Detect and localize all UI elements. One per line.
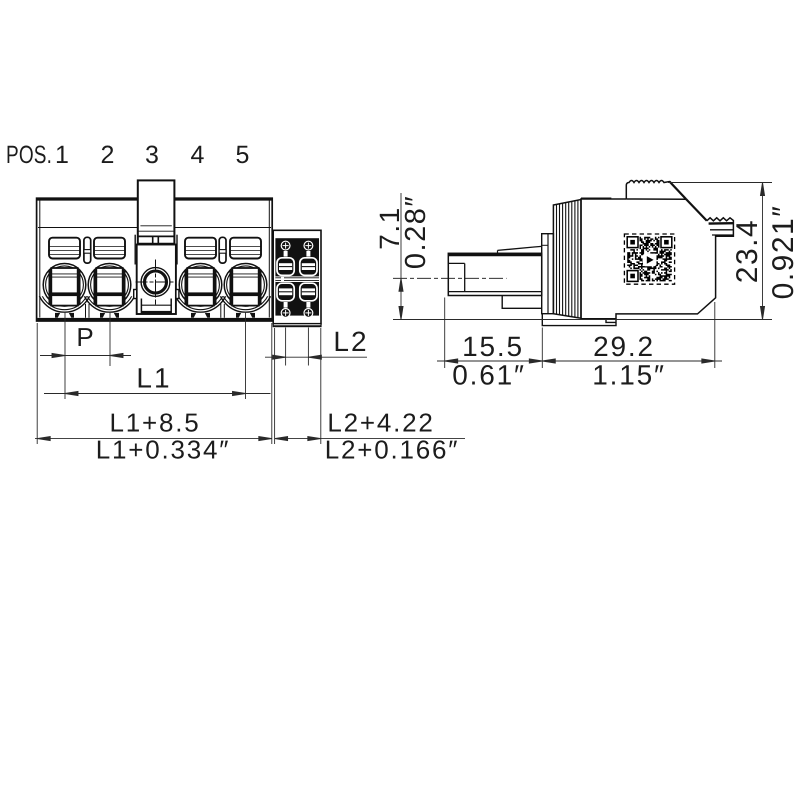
svg-text:0.921″: 0.921″ — [767, 205, 800, 300]
svg-text:1.15″: 1.15″ — [592, 360, 665, 391]
svg-text:29.2: 29.2 — [593, 331, 655, 362]
svg-text:POS.: POS. — [6, 141, 52, 169]
svg-text:L1: L1 — [136, 363, 171, 394]
svg-text:0.28″: 0.28″ — [400, 195, 432, 269]
svg-text:L1+8.5: L1+8.5 — [109, 408, 200, 438]
svg-text:L2+4.22: L2+4.22 — [327, 408, 434, 438]
svg-text:4: 4 — [191, 141, 205, 169]
svg-text:3: 3 — [145, 141, 159, 169]
svg-text:5: 5 — [236, 141, 250, 169]
svg-text:0.61″: 0.61″ — [452, 360, 525, 391]
svg-text:L2: L2 — [333, 326, 368, 357]
svg-text:1: 1 — [55, 141, 69, 169]
svg-text:23.4: 23.4 — [731, 219, 764, 283]
svg-text:L1+0.334″: L1+0.334″ — [96, 435, 231, 465]
svg-text:2: 2 — [101, 141, 115, 169]
svg-text:L2+0.166″: L2+0.166″ — [325, 435, 460, 465]
svg-text:15.5: 15.5 — [462, 331, 524, 362]
svg-text:P: P — [76, 322, 93, 352]
